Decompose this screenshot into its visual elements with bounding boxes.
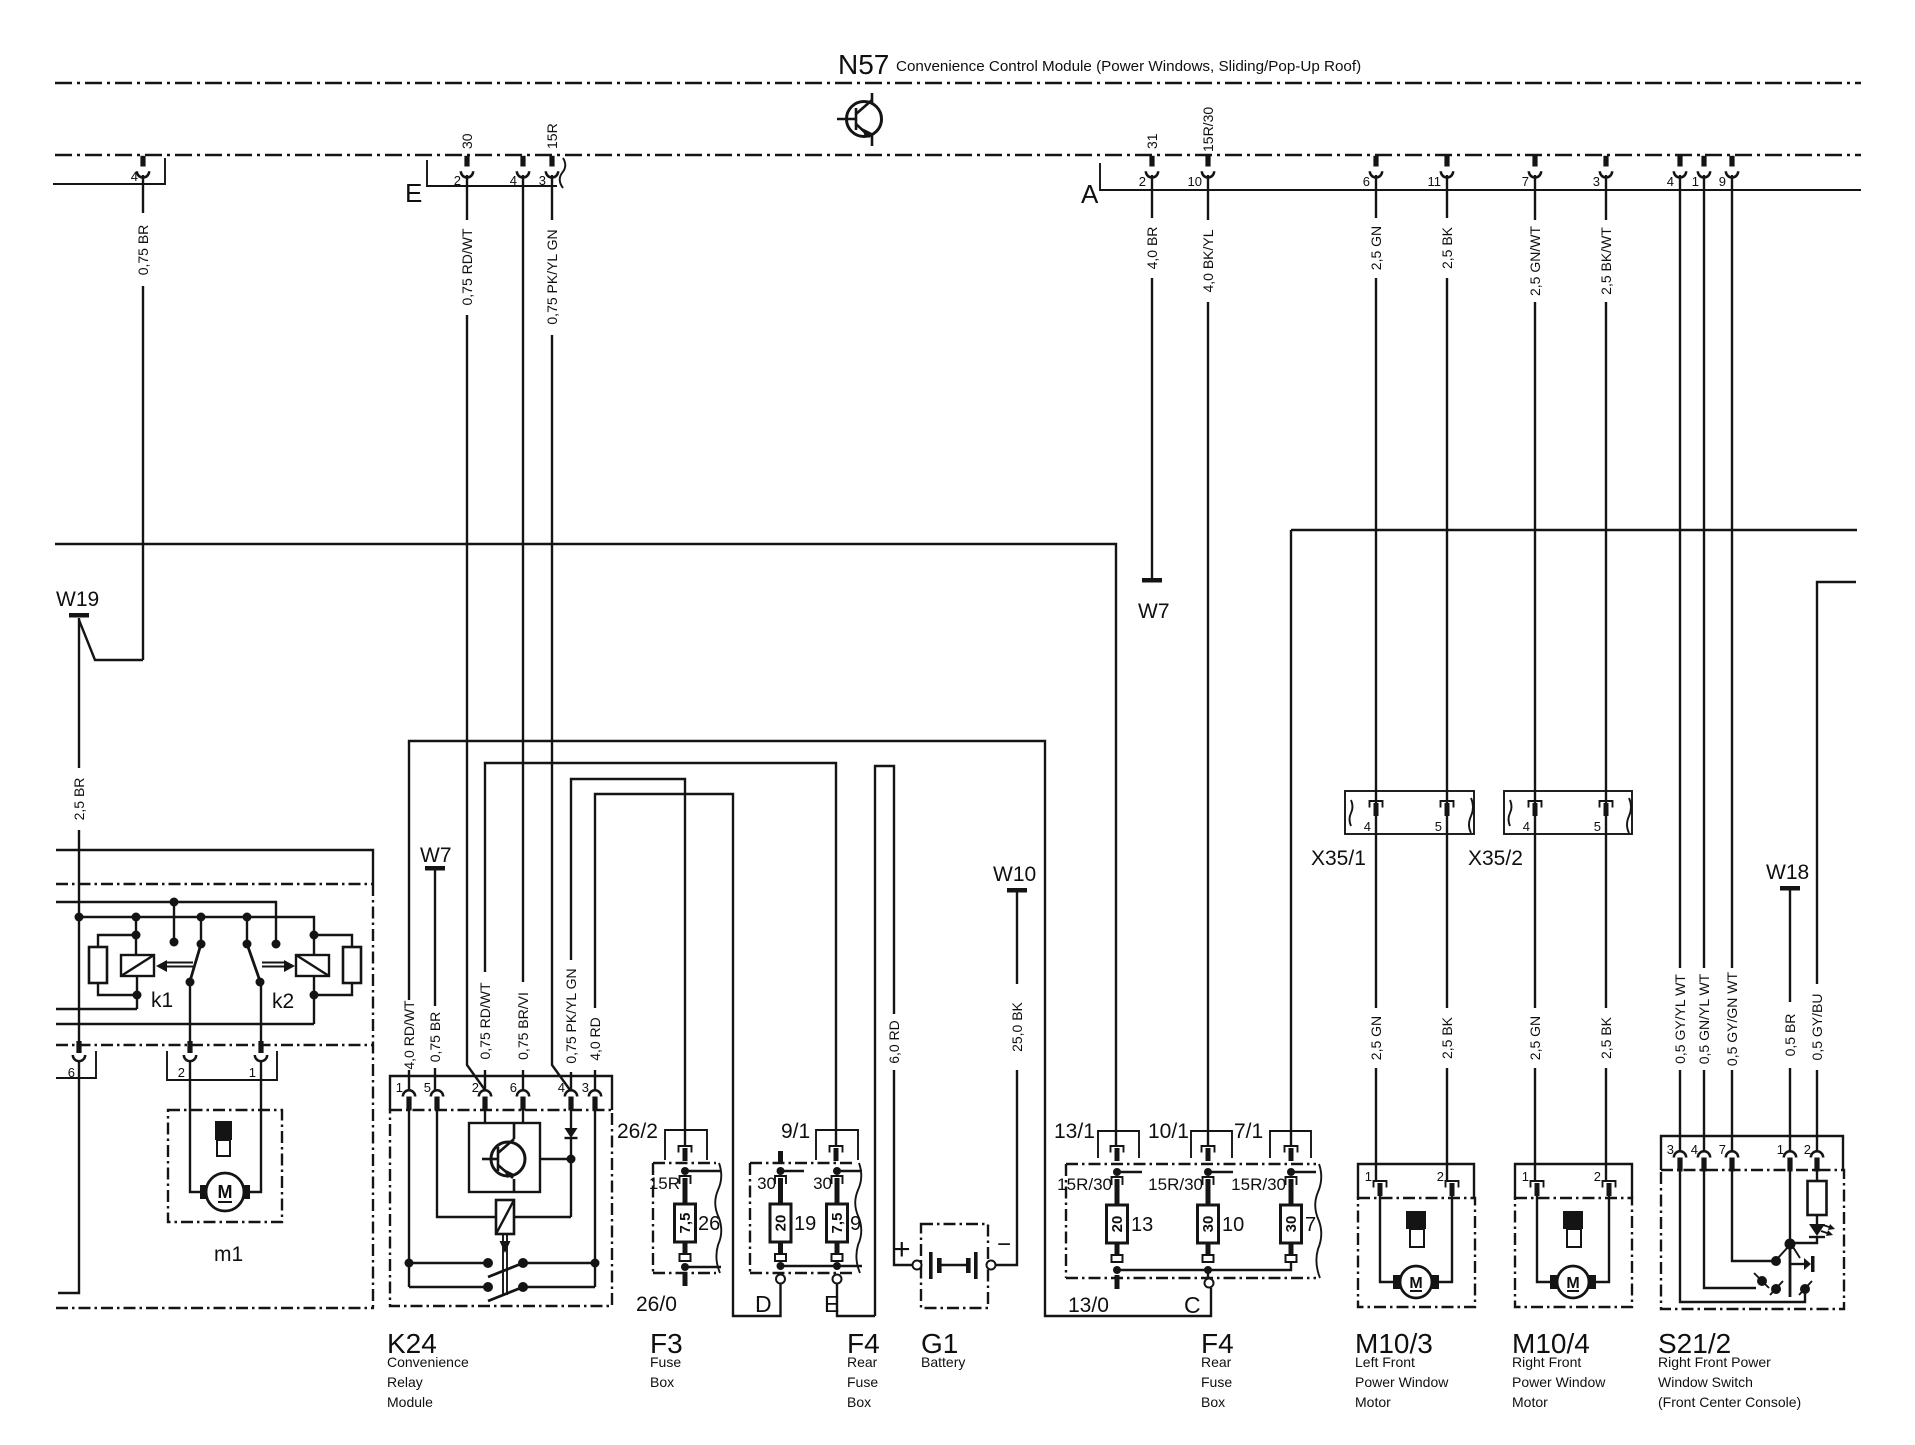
svg-text:15R: 15R <box>544 123 560 149</box>
svg-text:Rear: Rear <box>847 1354 878 1370</box>
svg-text:M: M <box>218 1182 233 1202</box>
svg-text:10: 10 <box>1188 174 1202 189</box>
svg-text:X35/1: X35/1 <box>1311 847 1366 870</box>
svg-text:19: 19 <box>794 1213 816 1235</box>
svg-text:k1: k1 <box>151 989 173 1012</box>
svg-text:2,5 GN/WT: 2,5 GN/WT <box>1527 226 1543 296</box>
svg-text:Right Front Power: Right Front Power <box>1658 1354 1771 1370</box>
svg-text:W19: W19 <box>56 588 99 611</box>
svg-text:4: 4 <box>1364 819 1371 834</box>
svg-text:7,5: 7,5 <box>677 1213 694 1234</box>
svg-text:Convenience Control Module (Po: Convenience Control Module (Power Window… <box>896 58 1361 75</box>
svg-text:0,75 PK/YL GN: 0,75 PK/YL GN <box>563 968 579 1063</box>
svg-text:7: 7 <box>1522 174 1529 189</box>
svg-text:E: E <box>405 178 422 208</box>
svg-text:6: 6 <box>510 1080 517 1095</box>
svg-text:15R/30: 15R/30 <box>1148 1175 1203 1194</box>
svg-text:Fuse: Fuse <box>1201 1374 1232 1390</box>
svg-text:M: M <box>1566 1275 1579 1292</box>
svg-text:25,0 BK: 25,0 BK <box>1009 1001 1025 1051</box>
svg-text:5: 5 <box>1435 819 1442 834</box>
svg-text:0,75 RD/WT: 0,75 RD/WT <box>459 228 475 305</box>
svg-text:7: 7 <box>1719 1142 1726 1157</box>
svg-text:2: 2 <box>454 173 461 188</box>
svg-text:2: 2 <box>178 1065 185 1080</box>
svg-text:30: 30 <box>757 1174 776 1193</box>
svg-text:0,5 GN/YL WT: 0,5 GN/YL WT <box>1696 973 1712 1064</box>
svg-text:Convenience: Convenience <box>387 1354 469 1370</box>
svg-text:0,75 RD/WT: 0,75 RD/WT <box>477 982 493 1059</box>
svg-text:2: 2 <box>1437 1169 1444 1184</box>
svg-text:10/1: 10/1 <box>1148 1120 1189 1143</box>
svg-text:9: 9 <box>850 1213 861 1235</box>
svg-text:2,5 BK: 2,5 BK <box>1439 1016 1455 1059</box>
svg-text:2: 2 <box>1139 174 1146 189</box>
svg-text:20: 20 <box>1109 1216 1126 1233</box>
svg-text:0,5 GY/YL WT: 0,5 GY/YL WT <box>1672 974 1688 1064</box>
svg-text:M: M <box>1409 1275 1422 1292</box>
svg-text:W18: W18 <box>1766 861 1809 884</box>
svg-text:30: 30 <box>1283 1216 1300 1233</box>
svg-text:(Front Center Console): (Front Center Console) <box>1658 1394 1801 1410</box>
svg-text:1: 1 <box>1522 1169 1529 1184</box>
svg-text:D: D <box>755 1291 772 1317</box>
svg-text:4: 4 <box>131 169 138 184</box>
svg-text:Right Front: Right Front <box>1512 1354 1581 1370</box>
svg-text:4,0 BK/YL: 4,0 BK/YL <box>1200 229 1216 292</box>
svg-text:7/1: 7/1 <box>1234 1120 1263 1143</box>
svg-text:Fuse: Fuse <box>650 1354 681 1370</box>
svg-text:20: 20 <box>773 1215 790 1232</box>
svg-text:C: C <box>1184 1292 1201 1318</box>
svg-text:2,5 GN: 2,5 GN <box>1368 1016 1384 1060</box>
svg-text:3: 3 <box>1593 174 1600 189</box>
svg-text:Left Front: Left Front <box>1355 1354 1415 1370</box>
svg-text:15R: 15R <box>649 1174 680 1193</box>
svg-text:30: 30 <box>1200 1216 1217 1233</box>
svg-text:W7: W7 <box>420 844 452 867</box>
svg-text:3: 3 <box>1667 1142 1674 1157</box>
svg-text:Window Switch: Window Switch <box>1658 1374 1753 1390</box>
svg-text:5: 5 <box>424 1080 431 1095</box>
svg-text:26/0: 26/0 <box>636 1293 677 1316</box>
svg-text:W10: W10 <box>993 863 1036 886</box>
svg-text:15R/30: 15R/30 <box>1231 1175 1286 1194</box>
svg-text:9: 9 <box>1719 174 1726 189</box>
svg-text:Power Window: Power Window <box>1512 1374 1606 1390</box>
svg-text:0,75 BR: 0,75 BR <box>427 1012 443 1063</box>
svg-text:k2: k2 <box>272 990 294 1013</box>
svg-text:4,0 BR: 4,0 BR <box>1144 227 1160 270</box>
svg-text:1: 1 <box>1692 174 1699 189</box>
svg-text:13/0: 13/0 <box>1068 1294 1109 1317</box>
svg-text:1: 1 <box>1777 1142 1784 1157</box>
svg-text:4: 4 <box>1523 819 1530 834</box>
svg-text:2: 2 <box>1804 1142 1811 1157</box>
svg-text:Relay: Relay <box>387 1374 423 1390</box>
svg-text:2,5 BK/WT: 2,5 BK/WT <box>1598 227 1614 295</box>
svg-text:Motor: Motor <box>1512 1394 1548 1410</box>
svg-text:0,5 GY/GN WT: 0,5 GY/GN WT <box>1724 971 1740 1066</box>
svg-text:4: 4 <box>558 1080 565 1095</box>
svg-text:3: 3 <box>539 173 546 188</box>
svg-text:Box: Box <box>847 1394 871 1410</box>
svg-text:0,5 GY/BU: 0,5 GY/BU <box>1809 994 1825 1061</box>
svg-text:26/2: 26/2 <box>617 1120 658 1143</box>
svg-text:2,5 BK: 2,5 BK <box>1598 1016 1614 1059</box>
svg-text:7: 7 <box>1305 1214 1316 1236</box>
svg-text:Motor: Motor <box>1355 1394 1391 1410</box>
svg-text:+: + <box>893 1233 911 1266</box>
svg-text:4: 4 <box>510 173 517 188</box>
svg-text:30: 30 <box>813 1174 832 1193</box>
svg-text:7,5: 7,5 <box>829 1213 846 1234</box>
svg-text:m1: m1 <box>214 1243 243 1266</box>
svg-text:Power Window: Power Window <box>1355 1374 1449 1390</box>
svg-text:−: − <box>997 1231 1011 1258</box>
svg-text:0,5 BR: 0,5 BR <box>1782 1014 1798 1057</box>
svg-text:1: 1 <box>396 1080 403 1095</box>
svg-text:4,0 RD/WT: 4,0 RD/WT <box>401 1000 417 1070</box>
svg-text:Box: Box <box>650 1374 674 1390</box>
svg-text:6: 6 <box>1363 174 1370 189</box>
svg-text:31: 31 <box>1144 133 1160 149</box>
svg-text:0,75 BR/VI: 0,75 BR/VI <box>515 992 531 1060</box>
svg-text:2,5 GN: 2,5 GN <box>1368 226 1384 270</box>
svg-text:15R/30: 15R/30 <box>1057 1175 1112 1194</box>
svg-text:4,0 RD: 4,0 RD <box>587 1017 603 1061</box>
svg-text:4: 4 <box>1691 1142 1698 1157</box>
svg-text:Fuse: Fuse <box>847 1374 878 1390</box>
svg-text:2,5 BK: 2,5 BK <box>1439 226 1455 269</box>
svg-text:0,75 BR: 0,75 BR <box>135 225 151 276</box>
svg-text:11: 11 <box>1428 174 1442 189</box>
svg-text:6,0 RD: 6,0 RD <box>886 1020 902 1064</box>
svg-text:X35/2: X35/2 <box>1468 847 1523 870</box>
svg-text:26: 26 <box>698 1213 720 1235</box>
svg-text:9/1: 9/1 <box>781 1120 810 1143</box>
svg-text:13: 13 <box>1131 1214 1153 1236</box>
svg-text:3: 3 <box>582 1080 589 1095</box>
svg-text:Box: Box <box>1201 1394 1225 1410</box>
svg-text:N57: N57 <box>838 49 889 80</box>
svg-text:2,5 GN: 2,5 GN <box>1527 1016 1543 1060</box>
svg-text:2,5 BR: 2,5 BR <box>71 778 87 821</box>
svg-text:2: 2 <box>1594 1169 1601 1184</box>
svg-text:0,75 PK/YL GN: 0,75 PK/YL GN <box>544 229 560 324</box>
svg-text:Module: Module <box>387 1394 433 1410</box>
svg-text:30: 30 <box>459 133 475 149</box>
svg-text:W7: W7 <box>1138 600 1170 623</box>
svg-text:1: 1 <box>249 1065 256 1080</box>
svg-text:Battery: Battery <box>921 1354 965 1370</box>
svg-text:13/1: 13/1 <box>1054 1120 1095 1143</box>
svg-text:4: 4 <box>1667 174 1674 189</box>
svg-text:A: A <box>1081 179 1099 209</box>
svg-text:Rear: Rear <box>1201 1354 1232 1370</box>
svg-text:E: E <box>824 1291 839 1317</box>
svg-text:2: 2 <box>472 1080 479 1095</box>
svg-text:5: 5 <box>1594 819 1601 834</box>
svg-text:10: 10 <box>1222 1214 1244 1236</box>
svg-text:1: 1 <box>1365 1169 1372 1184</box>
svg-text:15R/30: 15R/30 <box>1200 107 1216 152</box>
